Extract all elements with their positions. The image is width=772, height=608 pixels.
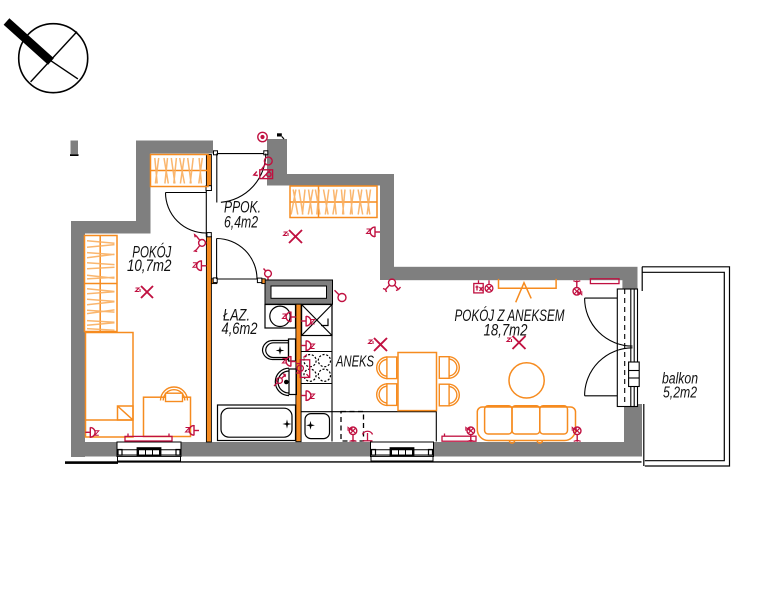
svg-text:10,7m2: 10,7m2: [127, 257, 172, 275]
svg-text:5,2m2: 5,2m2: [663, 385, 697, 402]
svg-text:4,6m2: 4,6m2: [222, 320, 258, 338]
svg-text:6,4m2: 6,4m2: [224, 214, 258, 232]
svg-text:18,7m2: 18,7m2: [484, 322, 528, 340]
svg-text:ANEKS: ANEKS: [335, 354, 374, 371]
